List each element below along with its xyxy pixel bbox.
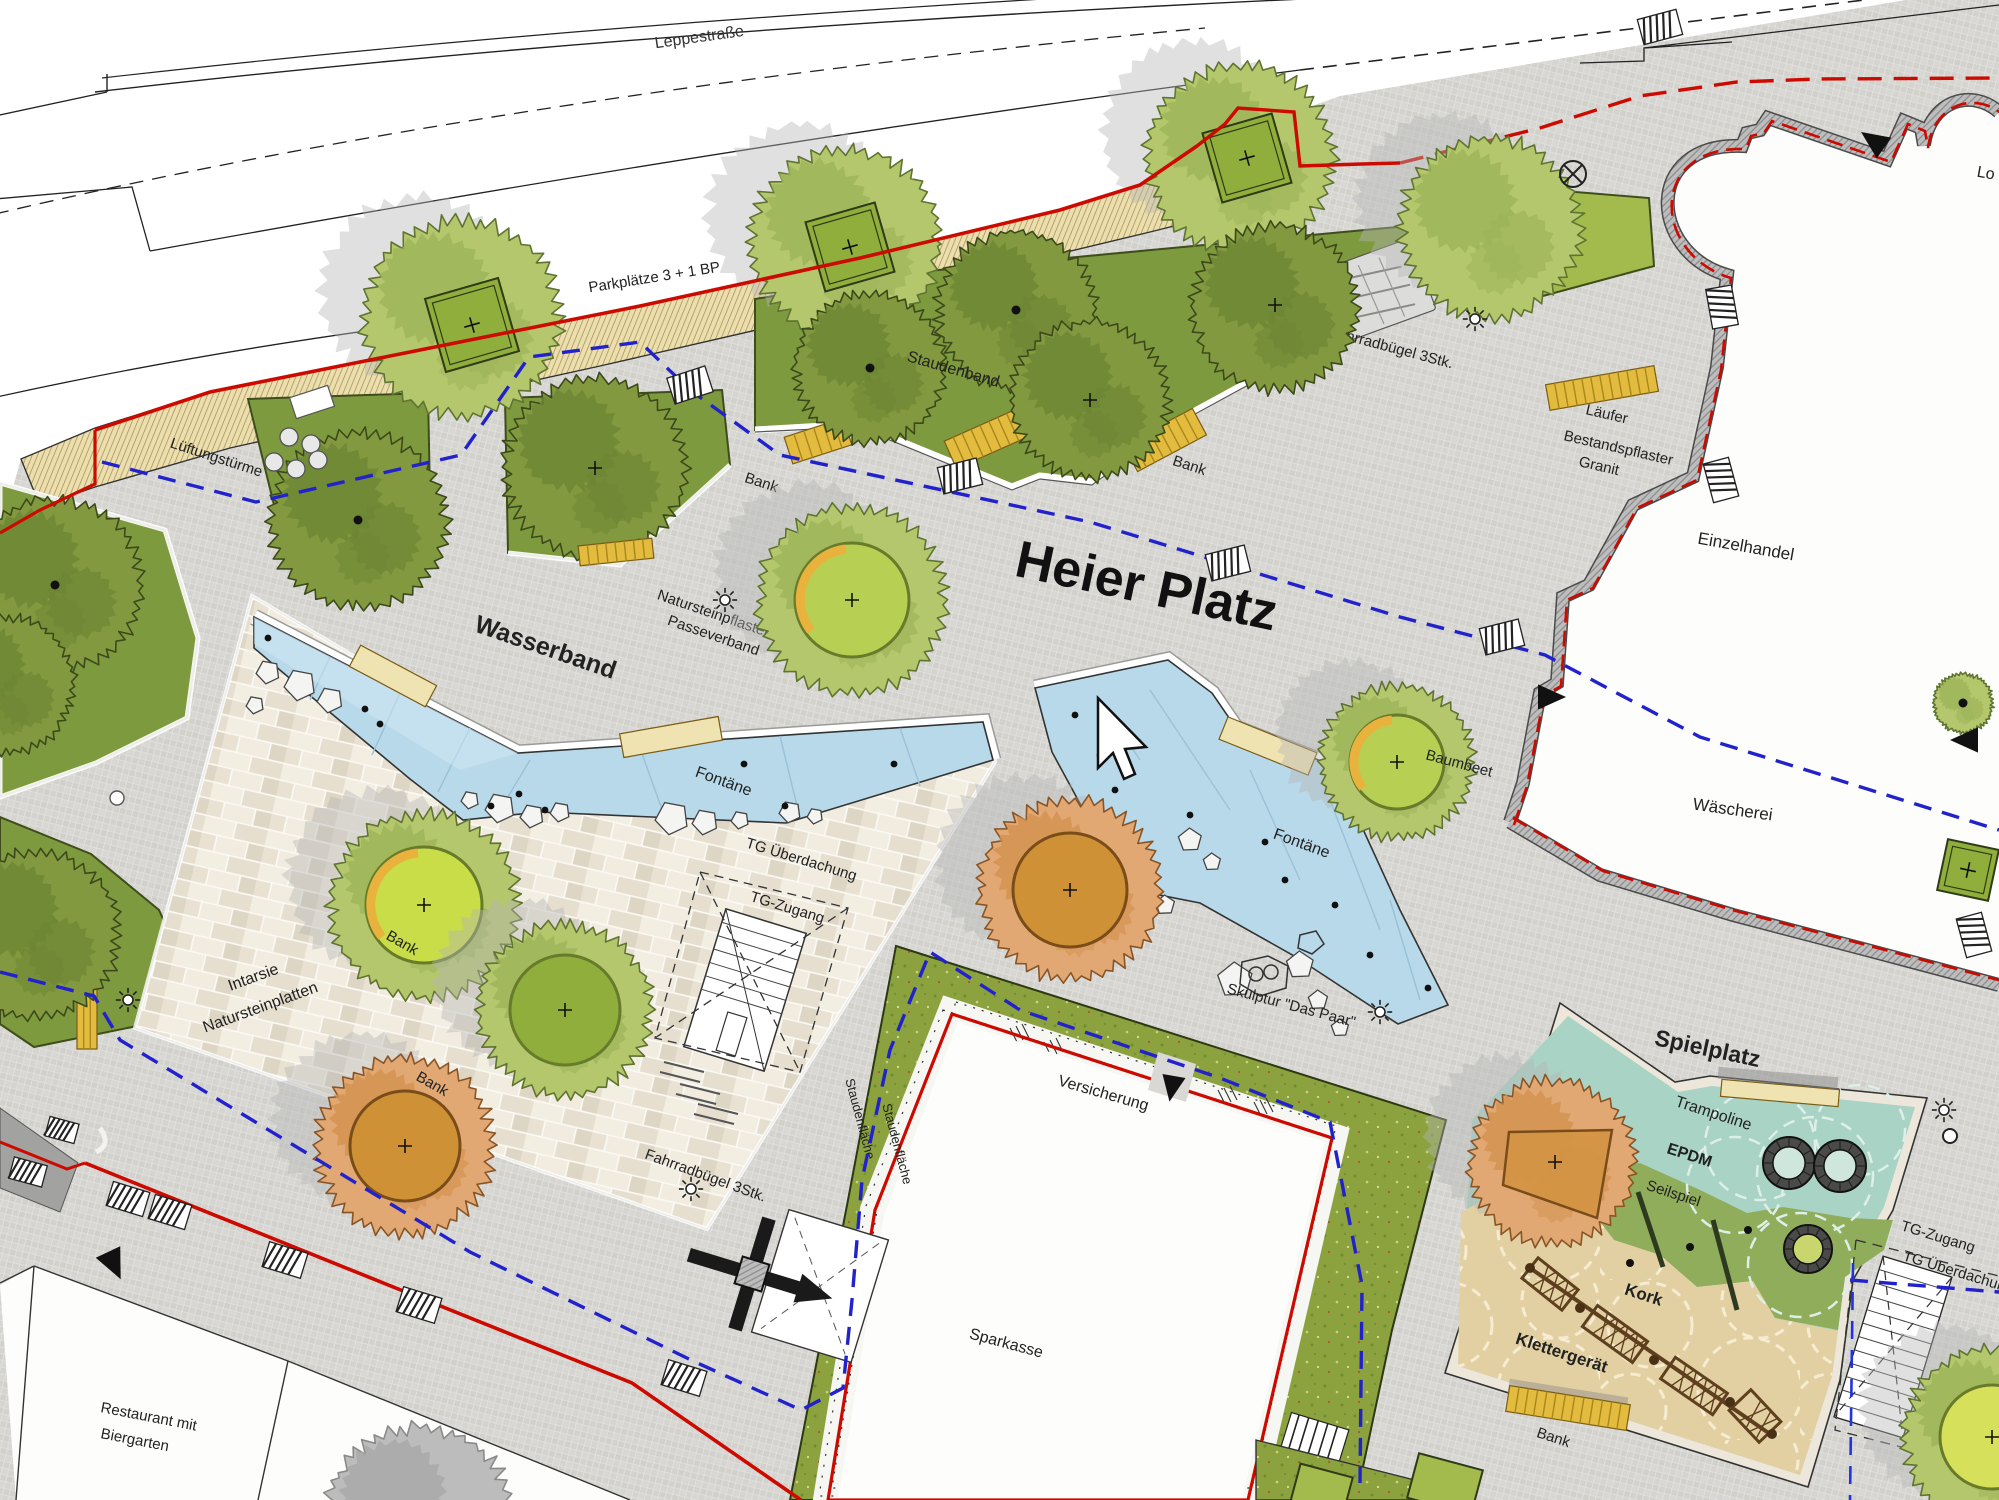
svg-text:Lo: Lo [1976,164,1997,184]
